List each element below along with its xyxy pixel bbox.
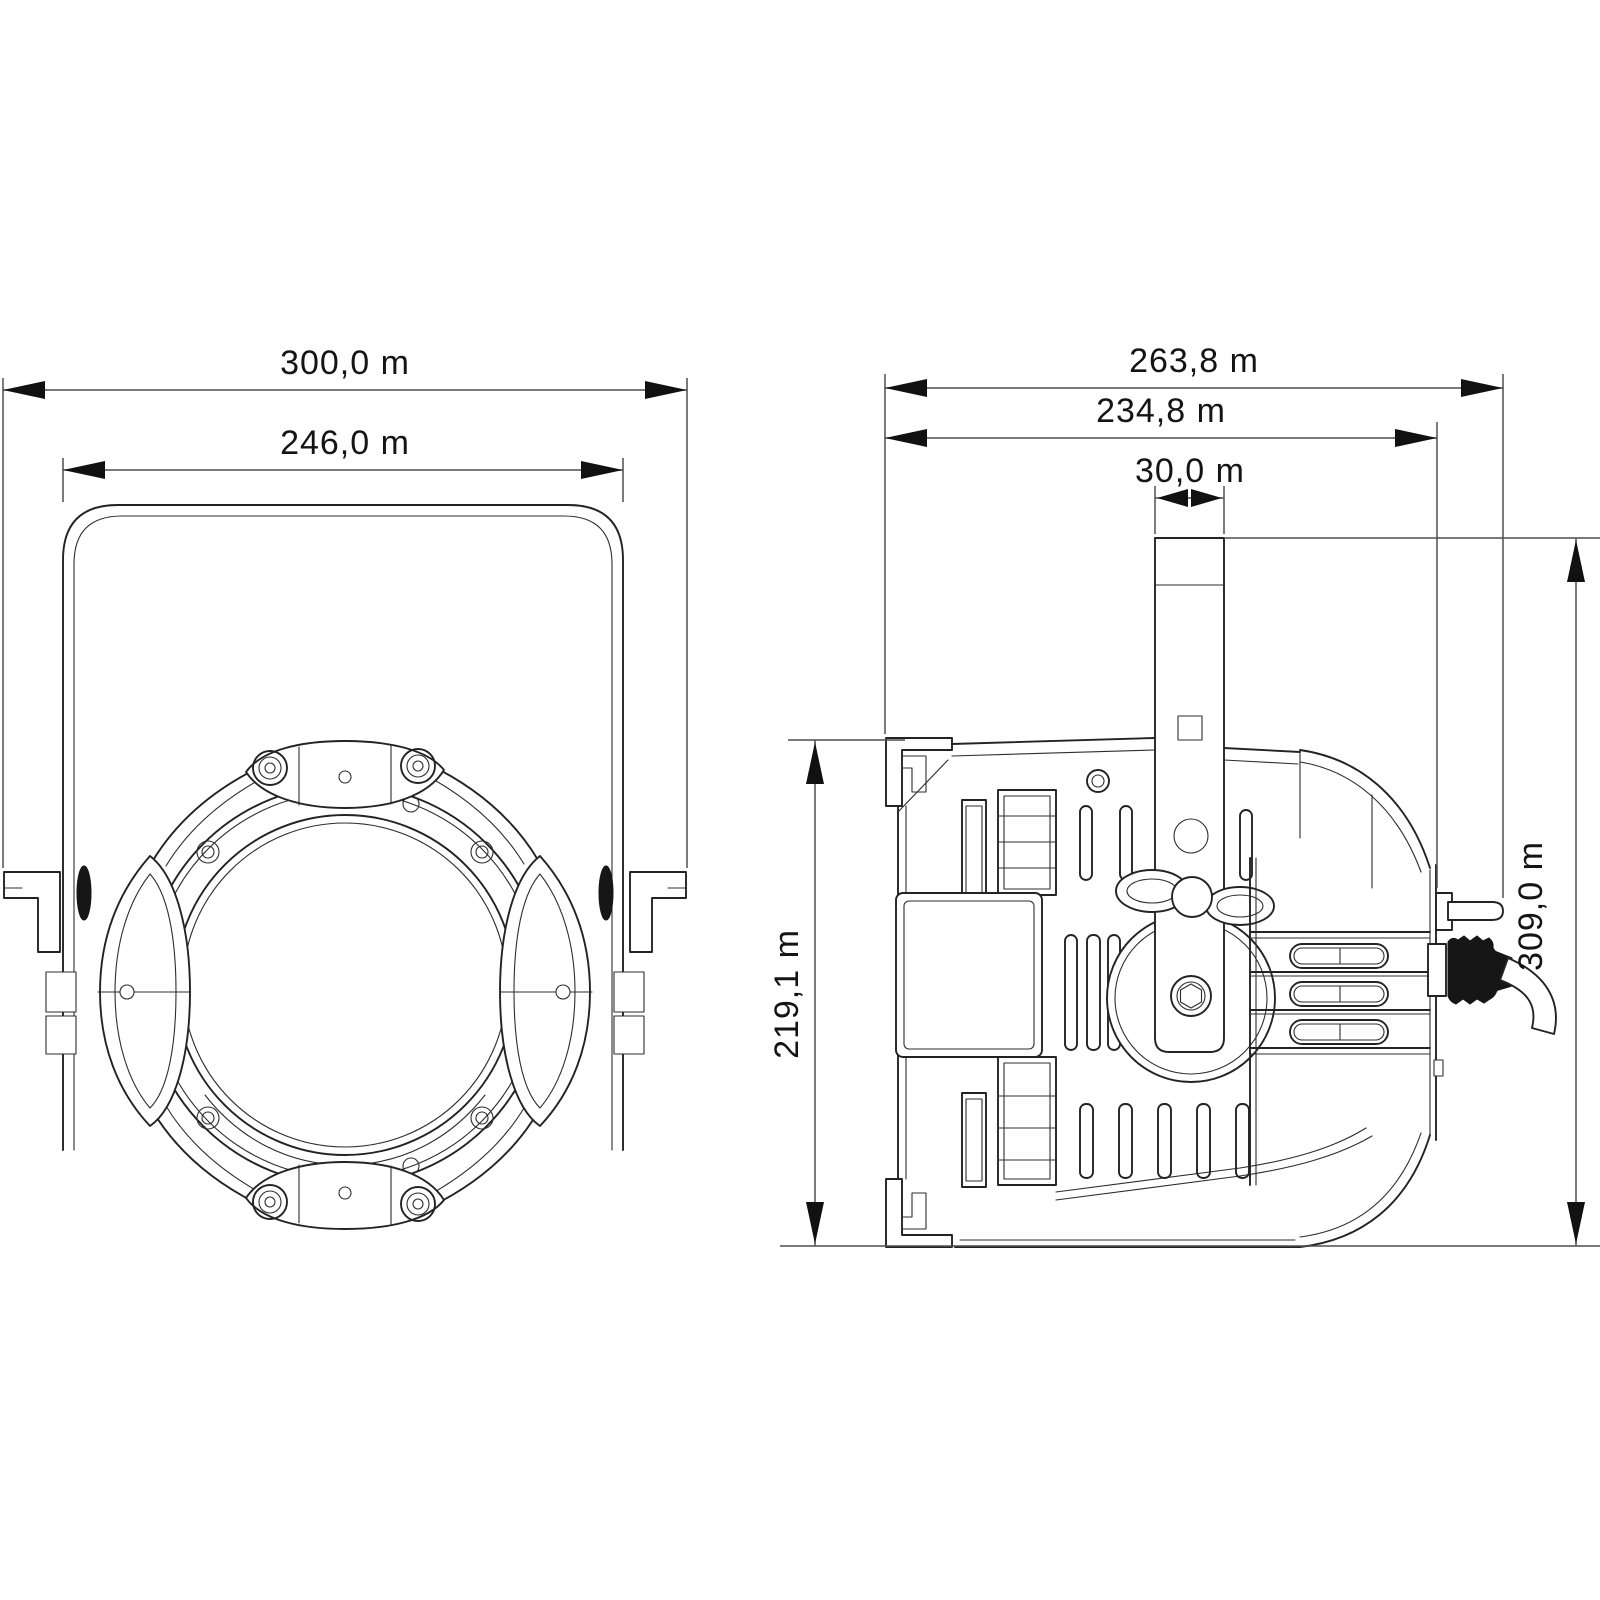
dim-label-side-body-depth: 234,8 m — [1096, 392, 1226, 430]
dim-label-front-overall-width: 300,0 m — [280, 344, 410, 382]
rear-vent-slots — [1290, 944, 1388, 1044]
right-clamp-assembly — [500, 856, 686, 1126]
front-top-clip — [886, 738, 952, 806]
dim-label-side-body-height: 219,1 m — [768, 929, 806, 1059]
lower-vent-slots — [1080, 1104, 1249, 1178]
technical-drawing-sheet: 300,0 m 246,0 m 263,8 m 234,8 m — [0, 0, 1600, 1600]
front-bottom-clip — [886, 1179, 952, 1247]
side-view — [886, 538, 1556, 1247]
dim-front-yoke-width: 246,0 m — [63, 424, 623, 502]
dim-label-side-overall-depth: 263,8 m — [1129, 342, 1259, 380]
yoke-bar — [1155, 538, 1224, 1052]
dim-yoke-bar-width: 30,0 m — [1135, 452, 1245, 534]
dim-label-front-yoke-width: 246,0 m — [280, 424, 410, 462]
dim-label-yoke-bar-width: 30,0 m — [1135, 452, 1245, 490]
fixture-dimension-drawing: 300,0 m 246,0 m 263,8 m 234,8 m — [0, 0, 1600, 1600]
front-block — [896, 893, 1042, 1057]
housing-screw — [1087, 770, 1109, 792]
dim-side-body-height: 219,1 m — [768, 740, 905, 1246]
front-view — [4, 505, 686, 1229]
pivot-hub-bolt — [1171, 976, 1211, 1016]
left-clamp-assembly — [4, 856, 190, 1126]
rear-pin — [1436, 893, 1503, 930]
dim-label-side-overall-height: 309,0 m — [1512, 841, 1550, 971]
lens-ring-outer — [145, 785, 545, 1185]
